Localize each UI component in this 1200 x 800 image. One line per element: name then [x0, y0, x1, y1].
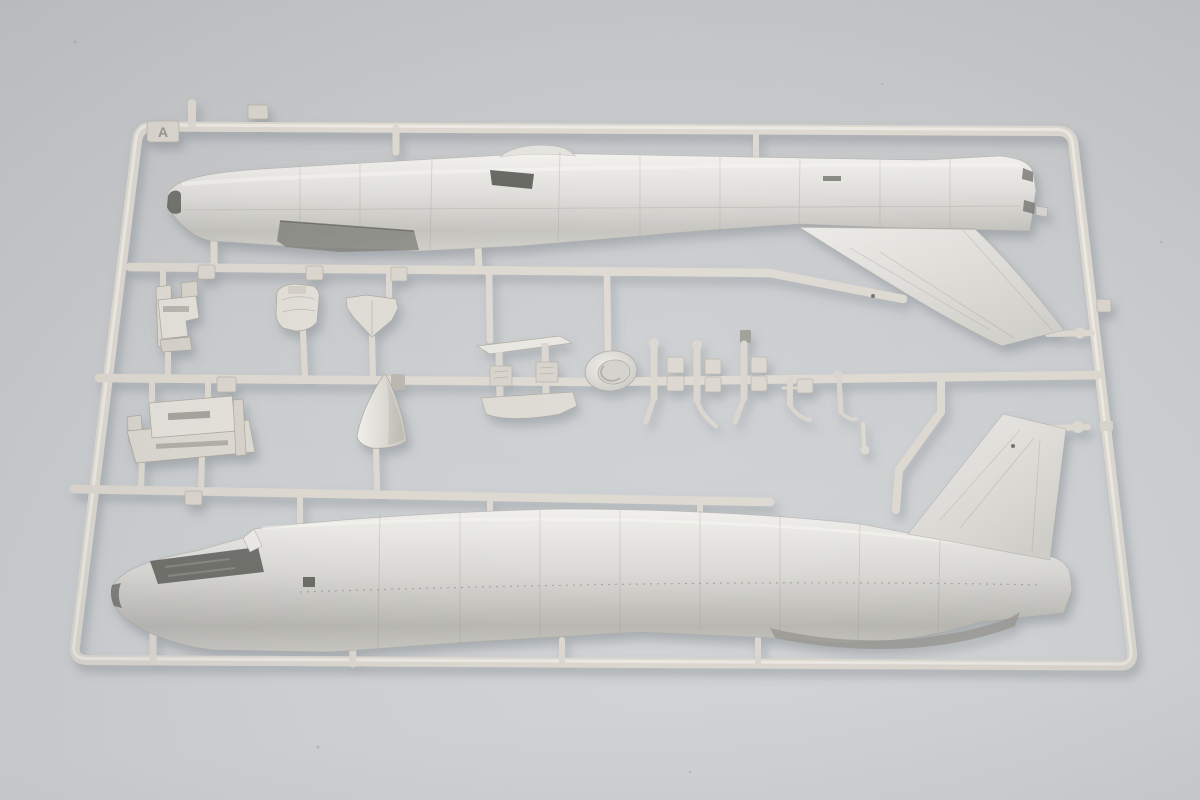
sprue-letter: A	[158, 124, 168, 140]
part-number-tab	[185, 491, 202, 505]
tail-fin-lower: Tail fin on lower fuselage half	[908, 414, 1066, 560]
part-number-tab	[751, 376, 767, 391]
part-number-tab	[797, 379, 813, 393]
part-number-tab	[751, 357, 767, 373]
part-number-tab	[306, 266, 323, 280]
sprue: Sprue runner frame	[74, 103, 1132, 666]
part-number-tab	[667, 357, 684, 373]
part-number-tab	[217, 377, 236, 392]
ejection-seat: Ejection seat	[156, 281, 199, 352]
sprue-photo-drawing: Sprue runner frame	[0, 0, 1200, 800]
part-number-tab	[198, 265, 215, 279]
photo-of-model-kit-sprue: Sprue runner frame	[0, 0, 1200, 800]
wheel-dish: Wheel hub / dish	[583, 348, 639, 393]
cockpit-bulkhead: Cockpit bulkhead	[276, 284, 319, 331]
intake-shock-cone: Intake shock cone	[357, 374, 407, 448]
sprue-letter-tag: A	[147, 121, 179, 142]
fuselage-slot	[303, 577, 315, 587]
part-number-tab	[391, 267, 407, 281]
intake-splitter-plate: Intake splitter plate	[346, 295, 398, 337]
cockpit-tub: Cockpit tub / gear bay	[127, 396, 255, 463]
part-number-tab	[705, 359, 721, 374]
part-number-tab	[705, 377, 721, 392]
part-number-tab	[248, 105, 268, 119]
fuselage-vent	[823, 176, 841, 181]
part-number-tab	[667, 376, 684, 391]
part-number-tab	[1097, 299, 1111, 312]
tail-stub	[1036, 206, 1048, 217]
